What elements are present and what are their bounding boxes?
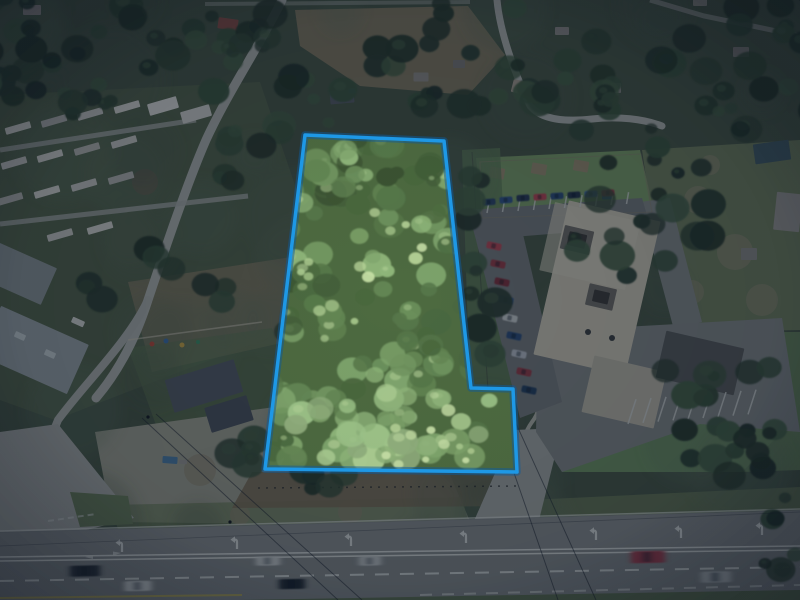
scene-canvas <box>0 0 800 600</box>
vignette <box>0 0 800 600</box>
aerial-listing-photo <box>0 0 800 600</box>
